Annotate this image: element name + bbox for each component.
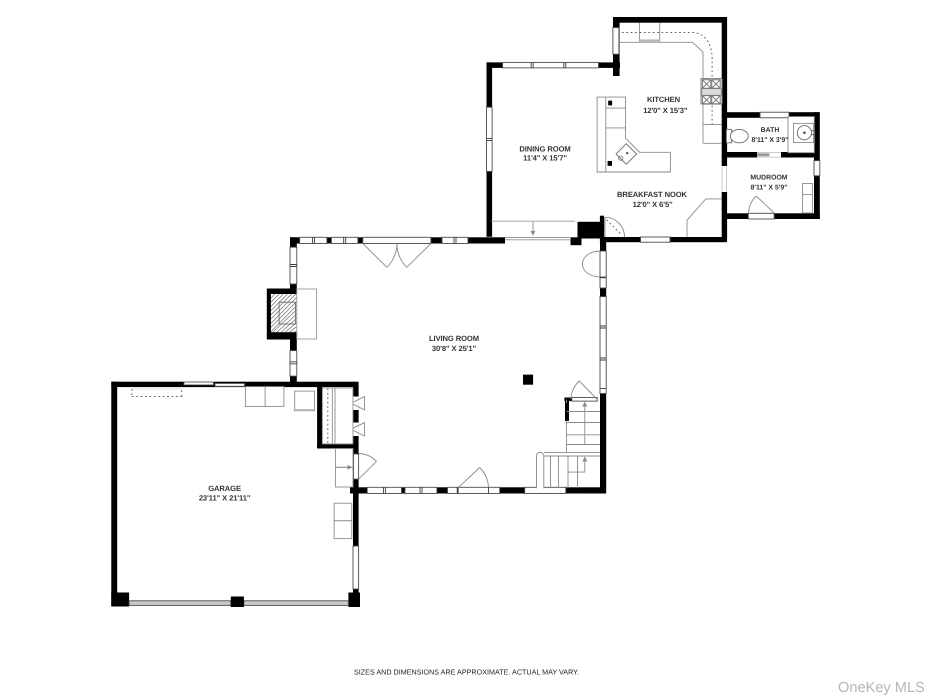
svg-text:KITCHEN: KITCHEN	[647, 95, 680, 104]
svg-text:SIZES AND DIMENSIONS ARE APPRO: SIZES AND DIMENSIONS ARE APPROXIMATE. AC…	[354, 668, 579, 677]
svg-text:BREAKFAST NOOK: BREAKFAST NOOK	[617, 190, 688, 199]
svg-text:23'11" X 21'11": 23'11" X 21'11"	[199, 494, 251, 503]
svg-text:OneKey MLS: OneKey MLS	[838, 680, 925, 696]
svg-text:8'11" X 5'9": 8'11" X 5'9"	[750, 185, 787, 192]
svg-text:DINING ROOM: DINING ROOM	[519, 144, 570, 153]
svg-text:LIVING ROOM: LIVING ROOM	[429, 334, 479, 343]
svg-text:GARAGE: GARAGE	[208, 484, 241, 493]
svg-text:12'0" X 15'3": 12'0" X 15'3"	[643, 106, 688, 115]
svg-text:12'0" X 6'5": 12'0" X 6'5"	[633, 200, 674, 209]
svg-text:8'11" X 3'9": 8'11" X 3'9"	[751, 137, 788, 144]
svg-text:MUDROOM: MUDROOM	[750, 174, 787, 181]
svg-text:BATH: BATH	[761, 127, 780, 134]
svg-text:30'8" X 25'1": 30'8" X 25'1"	[432, 344, 477, 353]
svg-text:11'4" X 15'7": 11'4" X 15'7"	[523, 153, 567, 162]
